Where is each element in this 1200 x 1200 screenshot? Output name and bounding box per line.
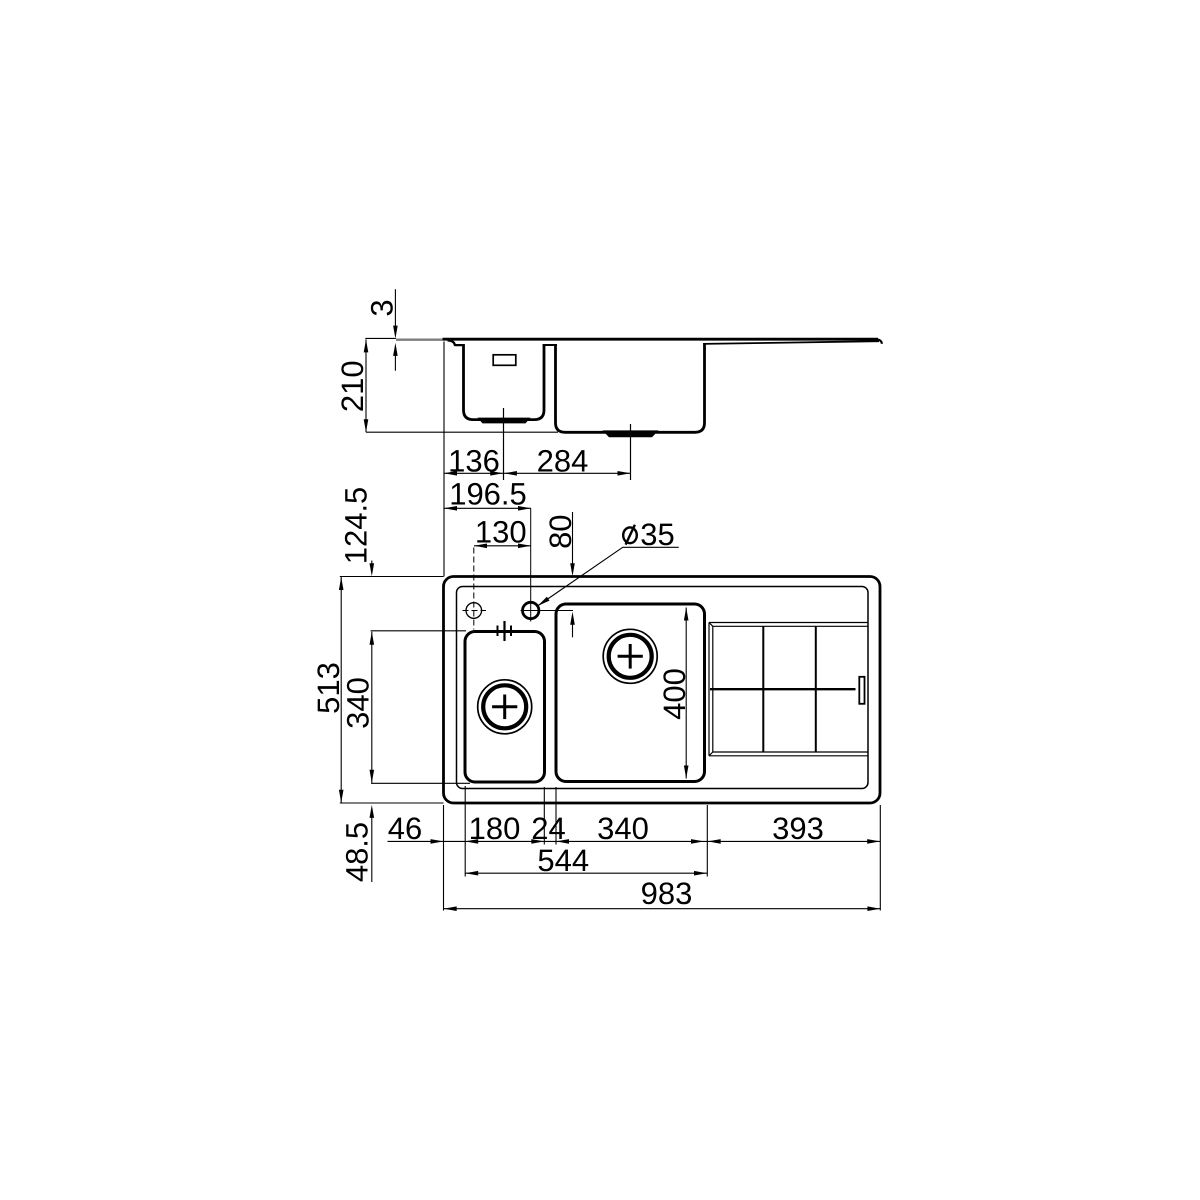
svg-text:340: 340 [597,811,649,846]
svg-text:400: 400 [657,668,692,720]
svg-text:80: 80 [543,514,578,548]
svg-text:24: 24 [531,811,565,846]
svg-text:136: 136 [448,444,500,479]
svg-text:124.5: 124.5 [339,487,374,565]
svg-text:3: 3 [365,299,400,316]
svg-text:983: 983 [641,876,693,911]
svg-text:340: 340 [341,677,376,729]
svg-text:48.5: 48.5 [340,822,375,882]
svg-text:35: 35 [640,517,674,552]
svg-text:210: 210 [335,360,370,412]
svg-text:284: 284 [537,444,589,479]
svg-text:393: 393 [772,811,824,846]
svg-text:46: 46 [388,811,422,846]
svg-text:544: 544 [537,843,589,878]
svg-text:180: 180 [469,811,521,846]
svg-text:130: 130 [475,514,527,549]
svg-text:196.5: 196.5 [449,477,527,512]
